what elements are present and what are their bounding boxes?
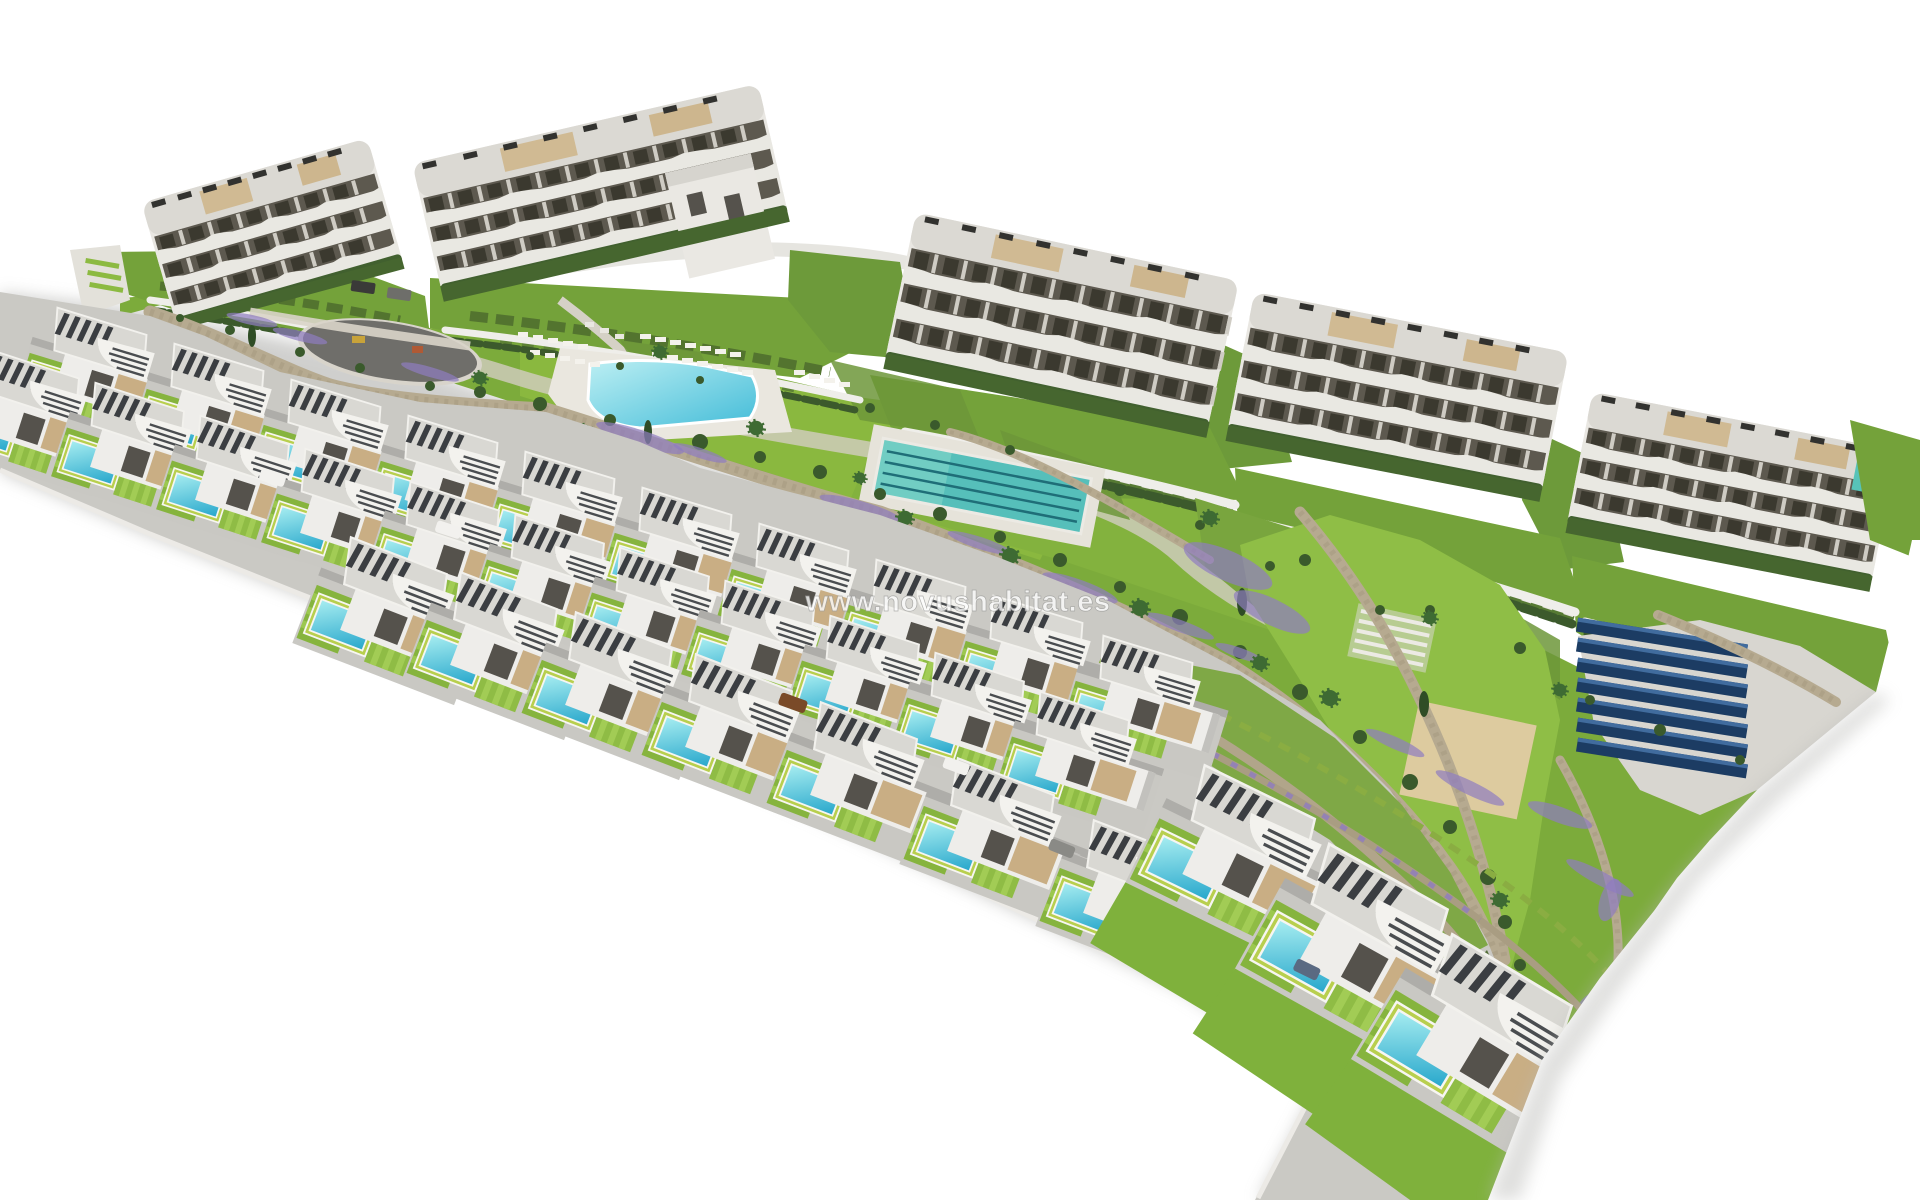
svg-text:www.novushabitat.es: www.novushabitat.es	[805, 586, 1111, 618]
